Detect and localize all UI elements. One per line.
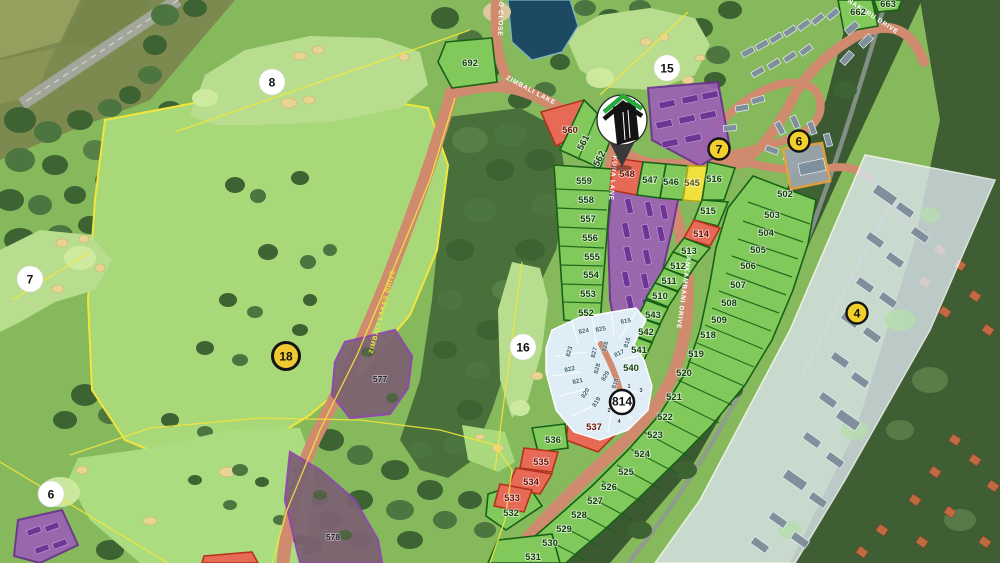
- green-patch: [462, 425, 515, 472]
- plot-label-522: 522: [657, 412, 673, 423]
- townhouse-complex-southwest[interactable]: [14, 510, 78, 563]
- plot-label-515: 515: [700, 206, 717, 217]
- plot-label-559: 559: [576, 176, 592, 187]
- plot-label-511: 511: [661, 276, 677, 287]
- plot-label-663: 663: [880, 0, 896, 10]
- road-label-indigo-close: INDIGO CLOSE: [496, 0, 505, 36]
- plot-label-516: 516: [706, 174, 722, 185]
- plot-label-504: 504: [758, 228, 775, 239]
- plot-label-535: 535: [533, 457, 550, 468]
- plot-label-536: 536: [545, 435, 561, 446]
- plot-label-554: 554: [583, 270, 600, 281]
- plot-label-578: 578: [326, 532, 340, 542]
- plot-label-507: 507: [730, 280, 746, 291]
- plot-label-662: 662: [850, 7, 866, 18]
- plot-label-513: 513: [681, 246, 697, 257]
- plot-label-543: 543: [645, 310, 661, 321]
- hole-label-8: 8: [269, 76, 276, 90]
- plot-label-530: 530: [542, 538, 558, 549]
- plot-label-510: 510: [652, 291, 668, 302]
- plot-label-524: 524: [634, 449, 651, 460]
- badge-label-7: 7: [716, 143, 723, 157]
- subplot-label-1: 1: [627, 384, 630, 390]
- plot-label-523: 523: [647, 430, 663, 441]
- plot-label-545: 545: [684, 178, 701, 189]
- plot-label-526: 526: [601, 482, 617, 493]
- hole-label-7: 7: [27, 273, 34, 287]
- plot-label-519: 519: [688, 349, 704, 360]
- hole-label-16: 16: [516, 341, 530, 355]
- plot-label-560: 560: [562, 125, 578, 136]
- plot-label-505: 505: [750, 245, 767, 256]
- plot-label-512: 512: [670, 261, 686, 272]
- plot-label-514: 514: [693, 229, 710, 240]
- plot-label-555: 555: [584, 252, 601, 263]
- plot-label-537: 537: [586, 422, 602, 433]
- badge-label-6: 6: [796, 135, 803, 149]
- hole-label-15: 15: [660, 62, 674, 76]
- pond: [508, 0, 578, 60]
- plot-label-692: 692: [462, 58, 478, 69]
- plot-label-552: 552: [578, 308, 594, 319]
- plot-label-509: 509: [711, 315, 727, 326]
- plot-label-558: 558: [578, 195, 594, 206]
- estate-master-plan-map: INDIGO CLOSE ZIMBALI LAKE ZIMBALI LAKES …: [0, 0, 1000, 563]
- plot-label-528: 528: [571, 510, 587, 521]
- plot-label-527: 527: [587, 496, 603, 507]
- plot-label-577: 577: [373, 374, 387, 384]
- plot-label-540: 540: [623, 363, 639, 374]
- plot-label-503: 503: [764, 210, 780, 221]
- plot-label-532: 532: [503, 508, 519, 519]
- plot-label-541: 541: [631, 345, 648, 356]
- badge-label-4: 4: [854, 307, 861, 321]
- plot-label-534: 534: [523, 477, 540, 488]
- plot-label-556: 556: [582, 233, 598, 244]
- plot-label-531: 531: [525, 552, 542, 563]
- plot-label-542: 542: [638, 327, 654, 338]
- plot-label-521: 521: [666, 392, 683, 403]
- plot-label-546: 546: [663, 177, 679, 188]
- subplot-label-3: 3: [639, 388, 642, 394]
- plot-label-520: 520: [676, 368, 692, 379]
- badge-label-814: 814: [612, 395, 632, 409]
- plot-label-508: 508: [721, 298, 737, 309]
- plot-label-533: 533: [504, 493, 520, 504]
- plot-label-529: 529: [556, 524, 572, 535]
- plot-label-502: 502: [777, 189, 793, 200]
- map-canvas: INDIGO CLOSE ZIMBALI LAKE ZIMBALI LAKES …: [0, 0, 1000, 563]
- plot-label-518: 518: [700, 330, 716, 341]
- subplot-label-2: 2: [607, 408, 610, 414]
- hole-label-18: 18: [279, 350, 293, 364]
- plot-label-553: 553: [580, 289, 596, 300]
- plot-label-547: 547: [642, 175, 658, 186]
- hole-label-6: 6: [48, 488, 55, 502]
- plot-label-506: 506: [740, 261, 756, 272]
- plot-label-557: 557: [580, 214, 596, 225]
- plot-label-525: 525: [618, 467, 635, 478]
